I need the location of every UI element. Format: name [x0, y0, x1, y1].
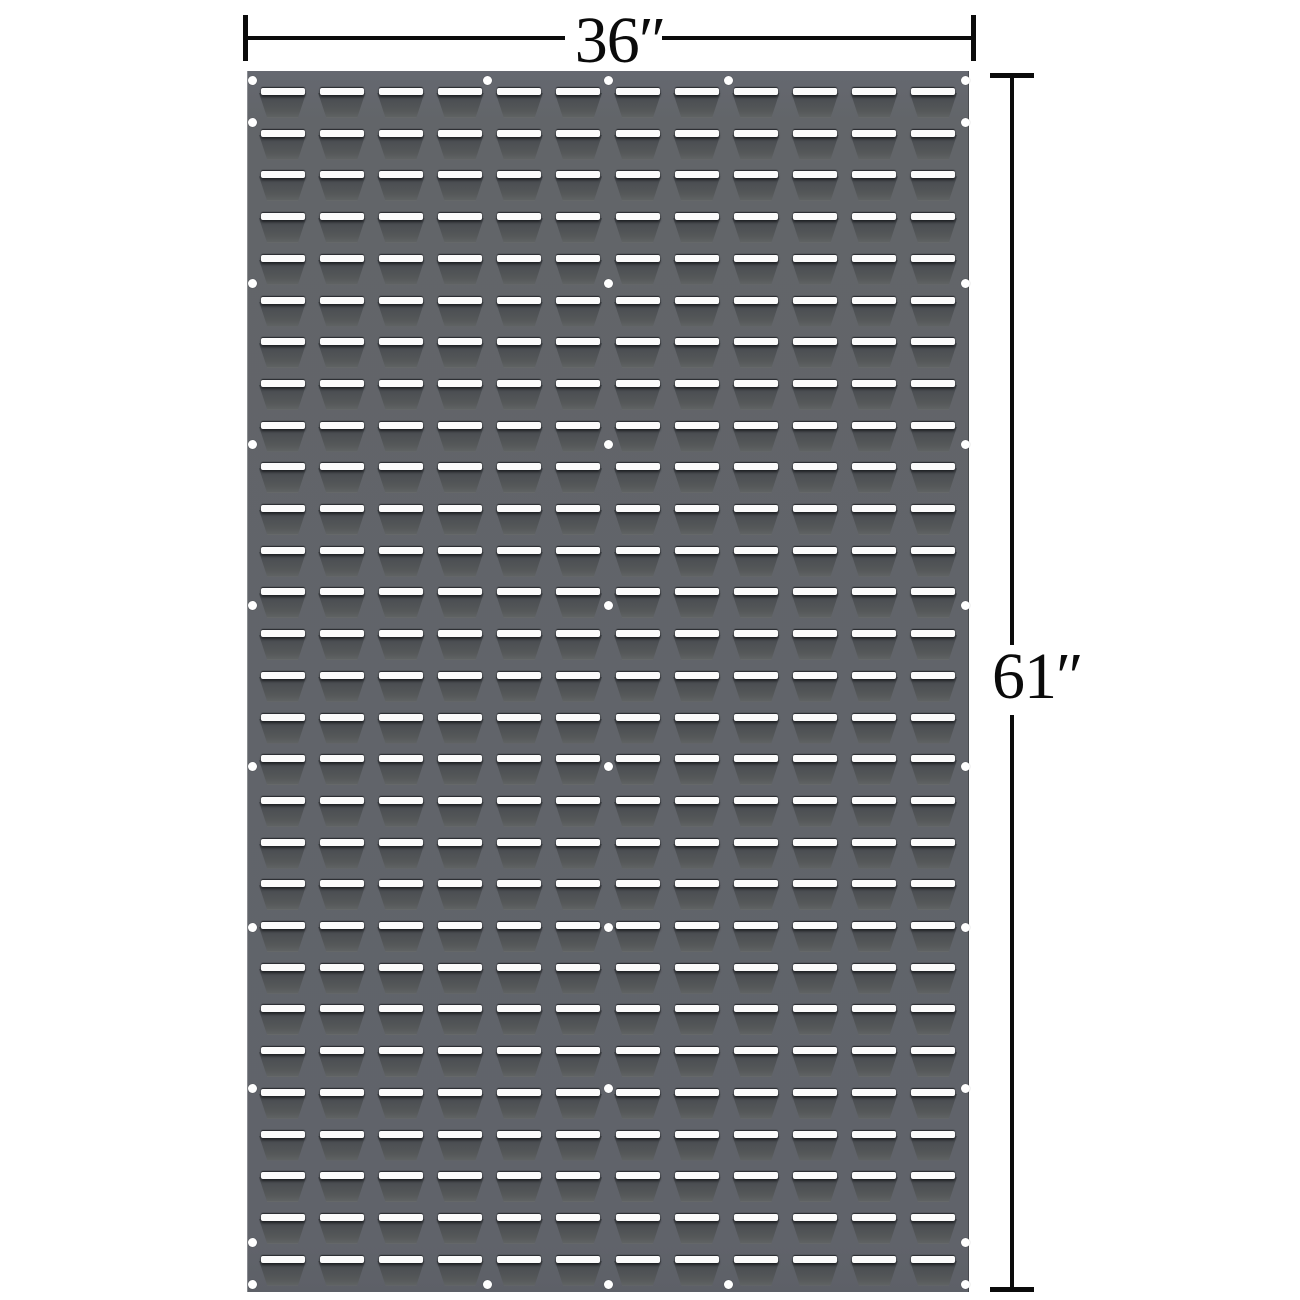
louver-slot — [495, 505, 543, 536]
mounting-hole — [483, 1280, 492, 1289]
louver-slit — [379, 714, 423, 721]
louver-slot — [732, 88, 780, 119]
louver-slit — [438, 547, 482, 554]
louver-slit — [911, 547, 955, 554]
louver-slit — [261, 1047, 305, 1054]
louver-slot — [909, 505, 957, 536]
louver-slit — [911, 422, 955, 429]
louver-pocket — [495, 510, 543, 535]
louver-slit — [852, 797, 896, 804]
louver-slit — [793, 213, 837, 220]
louver-pocket — [850, 1010, 898, 1035]
louver-slot — [850, 880, 898, 911]
louver-pocket — [259, 677, 307, 702]
louver-pocket — [909, 1010, 957, 1035]
louver-slot — [791, 1047, 839, 1078]
louver-pocket — [732, 1094, 780, 1119]
louver-slot — [259, 839, 307, 870]
louver-slit — [497, 380, 541, 387]
louver-slot — [554, 964, 602, 995]
louver-slit — [497, 1005, 541, 1012]
louver-slit — [556, 338, 600, 345]
louver-slot — [614, 588, 662, 619]
mounting-hole — [604, 279, 613, 288]
louver-slit — [261, 213, 305, 220]
louver-slot — [259, 547, 307, 578]
louver-pocket — [732, 802, 780, 827]
louver-slot — [909, 1214, 957, 1245]
louver-pocket — [673, 802, 721, 827]
louver-slit — [320, 422, 364, 429]
louver-slit — [793, 1005, 837, 1012]
mounting-hole — [604, 762, 613, 771]
louver-slit — [616, 380, 660, 387]
louver-slit — [556, 88, 600, 95]
louver-pocket — [732, 760, 780, 785]
louver-slot — [732, 422, 780, 453]
louver-slit — [734, 1172, 778, 1179]
mounting-hole — [248, 1280, 257, 1289]
louver-slot — [614, 714, 662, 745]
louver-pocket — [909, 343, 957, 368]
louver-slot — [732, 505, 780, 536]
louver-slit — [497, 171, 541, 178]
louver-slit — [379, 922, 423, 929]
louver-slit — [497, 755, 541, 762]
louver-slot — [436, 255, 484, 286]
louver-slit — [911, 1047, 955, 1054]
louver-pocket — [259, 176, 307, 201]
louver-slit — [320, 1047, 364, 1054]
louver-pocket — [259, 427, 307, 452]
louver-slot — [614, 839, 662, 870]
louver-slit — [793, 714, 837, 721]
louver-slot — [850, 797, 898, 828]
louver-pocket — [732, 969, 780, 994]
louver-pocket — [732, 260, 780, 285]
louver-slit — [556, 797, 600, 804]
mounting-hole — [961, 601, 970, 610]
louver-slit — [497, 1131, 541, 1138]
louver-slit — [379, 839, 423, 846]
louver-slot — [909, 672, 957, 703]
louver-slot — [673, 171, 721, 202]
louver-slot — [318, 880, 366, 911]
louver-pocket — [732, 1261, 780, 1286]
louver-slit — [793, 297, 837, 304]
height-dimension-line-bottom — [1010, 715, 1014, 1288]
louver-slit — [497, 547, 541, 554]
louver-slit — [734, 714, 778, 721]
louver-slot — [850, 380, 898, 411]
louver-slit — [793, 255, 837, 262]
louver-slot — [850, 338, 898, 369]
louver-slot — [436, 880, 484, 911]
louver-pocket — [318, 635, 366, 660]
louver-slit — [261, 1131, 305, 1138]
louver-slit — [616, 297, 660, 304]
louver-pocket — [259, 1094, 307, 1119]
louver-pocket — [614, 427, 662, 452]
louver-pocket — [259, 1177, 307, 1202]
louver-slit — [379, 1005, 423, 1012]
louver-slit — [675, 839, 719, 846]
louver-slit — [379, 1256, 423, 1263]
louver-slot — [909, 380, 957, 411]
louver-slit — [497, 922, 541, 929]
louver-pocket — [495, 760, 543, 785]
louver-slit — [379, 588, 423, 595]
louver-slit — [616, 964, 660, 971]
louver-slot — [318, 839, 366, 870]
louver-slit — [497, 797, 541, 804]
louver-slit — [379, 88, 423, 95]
louver-pocket — [791, 552, 839, 577]
louver-pocket — [732, 719, 780, 744]
louver-slit — [379, 338, 423, 345]
louver-slit — [261, 1172, 305, 1179]
louver-slot — [259, 672, 307, 703]
louver-slit — [793, 797, 837, 804]
louver-pocket — [495, 677, 543, 702]
louver-slit — [675, 1256, 719, 1263]
louver-slot — [732, 130, 780, 161]
louver-slit — [734, 88, 778, 95]
louver-slot — [318, 964, 366, 995]
louver-slit — [320, 297, 364, 304]
louver-slot — [318, 922, 366, 953]
louver-slit — [734, 1214, 778, 1221]
louver-slot — [791, 130, 839, 161]
louver-slot — [495, 547, 543, 578]
louver-slit — [438, 463, 482, 470]
louver-slot — [318, 338, 366, 369]
louver-slit — [734, 839, 778, 846]
louver-slit — [320, 505, 364, 512]
louver-slit — [438, 1214, 482, 1221]
louver-pocket — [495, 135, 543, 160]
louver-slit — [556, 964, 600, 971]
louver-pocket — [909, 218, 957, 243]
louver-pocket — [554, 552, 602, 577]
louver-slit — [734, 880, 778, 887]
louver-pocket — [377, 1052, 425, 1077]
louver-slit — [911, 255, 955, 262]
louver-slit — [852, 630, 896, 637]
louver-slit — [438, 1131, 482, 1138]
louver-slot — [259, 714, 307, 745]
louver-slit — [556, 1172, 600, 1179]
louver-pocket — [909, 1261, 957, 1286]
louver-slit — [320, 630, 364, 637]
louver-slit — [556, 1256, 600, 1263]
louver-pocket — [791, 385, 839, 410]
mounting-hole — [724, 1280, 733, 1289]
louver-slit — [793, 547, 837, 554]
louver-slot — [850, 588, 898, 619]
louver-slit — [616, 422, 660, 429]
mounting-hole — [961, 440, 970, 449]
louver-pocket — [909, 385, 957, 410]
louver-slit — [911, 1005, 955, 1012]
louver-pocket — [259, 927, 307, 952]
louver-pocket — [850, 510, 898, 535]
louver-slit — [793, 880, 837, 887]
louver-slot — [377, 714, 425, 745]
louver-pocket — [554, 802, 602, 827]
louver-slit — [261, 380, 305, 387]
louver-slit — [320, 338, 364, 345]
louver-slit — [675, 422, 719, 429]
louver-pocket — [495, 427, 543, 452]
louver-slit — [320, 1131, 364, 1138]
louver-slit — [675, 1047, 719, 1054]
louver-slot — [495, 338, 543, 369]
louver-slit — [556, 1214, 600, 1221]
louver-slot — [318, 1172, 366, 1203]
louver-pocket — [259, 135, 307, 160]
louver-pocket — [614, 1094, 662, 1119]
louver-pocket — [259, 302, 307, 327]
louver-pocket — [377, 135, 425, 160]
louver-slot — [614, 1005, 662, 1036]
louver-pocket — [495, 969, 543, 994]
louver-slot — [436, 1005, 484, 1036]
louver-slot — [850, 1131, 898, 1162]
louver-slit — [438, 588, 482, 595]
louver-pocket — [436, 385, 484, 410]
louver-slit — [852, 1005, 896, 1012]
louver-slot — [614, 255, 662, 286]
louver-slot — [436, 922, 484, 953]
louver-slot — [377, 1172, 425, 1203]
louver-pocket — [259, 844, 307, 869]
louver-slot — [436, 839, 484, 870]
louver-slit — [616, 839, 660, 846]
louver-slot — [614, 672, 662, 703]
louver-slit — [320, 1005, 364, 1012]
louver-pocket — [732, 844, 780, 869]
louver-slot — [791, 1256, 839, 1287]
louver-pocket — [495, 385, 543, 410]
louver-slit — [852, 1256, 896, 1263]
louver-pocket — [673, 93, 721, 118]
louver-slot — [259, 1047, 307, 1078]
louver-pocket — [614, 802, 662, 827]
louver-slot — [377, 130, 425, 161]
louver-slot — [495, 1256, 543, 1287]
louver-slot — [614, 755, 662, 786]
louver-slit — [438, 922, 482, 929]
louver-slot — [259, 1089, 307, 1120]
louver-slit — [734, 422, 778, 429]
louver-slot — [259, 588, 307, 619]
louver-slot — [436, 171, 484, 202]
louver-pocket — [614, 635, 662, 660]
louver-slit — [438, 755, 482, 762]
louver-slit — [556, 922, 600, 929]
louver-pocket — [436, 93, 484, 118]
louver-pocket — [259, 760, 307, 785]
louver-pocket — [909, 510, 957, 535]
louver-slot — [436, 1256, 484, 1287]
louver-pocket — [318, 760, 366, 785]
louver-slot — [614, 1256, 662, 1287]
louver-pocket — [909, 468, 957, 493]
louver-pocket — [318, 427, 366, 452]
louver-slit — [675, 1172, 719, 1179]
louver-slot — [259, 964, 307, 995]
louver-slit — [616, 463, 660, 470]
louver-pocket — [554, 1052, 602, 1077]
louver-slit — [616, 797, 660, 804]
louver-slit — [793, 422, 837, 429]
louver-pocket — [791, 802, 839, 827]
louver-pocket — [436, 552, 484, 577]
louver-slit — [497, 297, 541, 304]
louver-slot — [377, 213, 425, 244]
louver-slit — [793, 755, 837, 762]
louver-slit — [852, 297, 896, 304]
louver-slit — [675, 1214, 719, 1221]
louver-slot — [495, 922, 543, 953]
louver-slit — [320, 130, 364, 137]
louver-slot — [318, 1214, 366, 1245]
louver-pocket — [318, 969, 366, 994]
louver-slot — [554, 1089, 602, 1120]
louver-slit — [261, 130, 305, 137]
louver-pocket — [673, 1052, 721, 1077]
louver-slot — [850, 255, 898, 286]
louver-slit — [793, 1089, 837, 1096]
louver-slit — [497, 672, 541, 679]
louver-slot — [495, 463, 543, 494]
louver-slot — [318, 255, 366, 286]
louver-slit — [556, 255, 600, 262]
louver-slot — [436, 755, 484, 786]
louver-pocket — [732, 343, 780, 368]
louver-slot — [909, 213, 957, 244]
louver-slot — [791, 588, 839, 619]
louver-pocket — [377, 1219, 425, 1244]
louver-slot — [318, 714, 366, 745]
louver-slot — [318, 797, 366, 828]
louver-slit — [261, 171, 305, 178]
louver-slit — [497, 505, 541, 512]
louver-pocket — [259, 1010, 307, 1035]
louver-slot — [614, 1172, 662, 1203]
louver-slit — [852, 88, 896, 95]
louver-pocket — [732, 135, 780, 160]
louver-slit — [734, 1005, 778, 1012]
louver-slit — [379, 880, 423, 887]
louver-pocket — [909, 93, 957, 118]
louver-slit — [379, 630, 423, 637]
louver-slit — [616, 714, 660, 721]
louver-slot — [673, 255, 721, 286]
mounting-hole — [961, 762, 970, 771]
louver-pocket — [259, 802, 307, 827]
louver-slot — [436, 588, 484, 619]
louver-slit — [261, 463, 305, 470]
louver-slot — [673, 463, 721, 494]
louver-slot — [436, 1047, 484, 1078]
louver-slit — [675, 338, 719, 345]
louver-slot — [909, 588, 957, 619]
louver-pocket — [259, 552, 307, 577]
louver-slot — [673, 422, 721, 453]
louver-slot — [259, 1172, 307, 1203]
louver-slit — [497, 588, 541, 595]
louver-pocket — [377, 302, 425, 327]
louver-slit — [320, 255, 364, 262]
louver-pocket — [614, 302, 662, 327]
louver-slot — [259, 1005, 307, 1036]
louver-pocket — [259, 885, 307, 910]
louver-slot — [554, 922, 602, 953]
louver-slit — [734, 964, 778, 971]
louver-slit — [438, 1256, 482, 1263]
louver-pocket — [791, 844, 839, 869]
louver-slit — [261, 547, 305, 554]
louver-slit — [911, 588, 955, 595]
louver-pocket — [614, 719, 662, 744]
louver-slot — [850, 1089, 898, 1120]
louver-slit — [852, 1214, 896, 1221]
louver-slot — [732, 755, 780, 786]
louver-slit — [497, 1256, 541, 1263]
louver-pocket — [673, 343, 721, 368]
louver-slot — [673, 1131, 721, 1162]
louver-slit — [734, 255, 778, 262]
louver-slot — [318, 672, 366, 703]
louver-slit — [734, 505, 778, 512]
louver-slit — [852, 505, 896, 512]
louver-pocket — [909, 760, 957, 785]
louver-slit — [675, 588, 719, 595]
louver-pocket — [377, 1177, 425, 1202]
louver-slot — [732, 630, 780, 661]
louver-slot — [318, 171, 366, 202]
louver-slit — [261, 964, 305, 971]
louver-pocket — [554, 719, 602, 744]
louver-pocket — [495, 1219, 543, 1244]
louver-pocket — [614, 343, 662, 368]
louver-slot — [673, 338, 721, 369]
mounting-hole — [248, 440, 257, 449]
louver-pocket — [850, 343, 898, 368]
louver-slot — [791, 1005, 839, 1036]
louver-pocket — [791, 427, 839, 452]
louver-slot — [791, 964, 839, 995]
louver-slot — [614, 463, 662, 494]
louver-slot — [377, 1005, 425, 1036]
louver-slit — [616, 1047, 660, 1054]
louver-pocket — [850, 1136, 898, 1161]
louver-slit — [320, 672, 364, 679]
louver-pocket — [791, 1261, 839, 1286]
louver-slit — [379, 297, 423, 304]
louver-slit — [438, 505, 482, 512]
louver-pocket — [614, 552, 662, 577]
louver-slot — [554, 505, 602, 536]
louver-pocket — [732, 593, 780, 618]
louver-slit — [911, 1131, 955, 1138]
louver-pocket — [495, 93, 543, 118]
louver-slit — [675, 1131, 719, 1138]
louver-pocket — [850, 1177, 898, 1202]
louver-pocket — [318, 1010, 366, 1035]
